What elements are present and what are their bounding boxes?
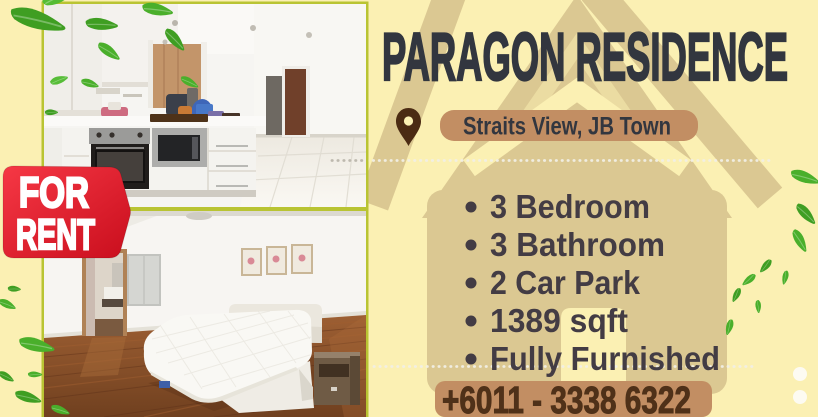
svg-text:2 Car Park: 2 Car Park <box>490 264 641 301</box>
svg-text:PARAGON RESIDENCE: PARAGON RESIDENCE <box>382 19 788 95</box>
svg-text:FOR: FOR <box>19 169 89 217</box>
svg-text:3 Bedroom: 3 Bedroom <box>490 188 650 225</box>
svg-text:+6011 - 3338 6322: +6011 - 3338 6322 <box>442 380 691 417</box>
svg-text:Fully Furnished: Fully Furnished <box>490 340 720 377</box>
svg-text:RENT: RENT <box>16 211 95 259</box>
svg-text:1389 sqft: 1389 sqft <box>490 302 628 339</box>
svg-text:3 Bathroom: 3 Bathroom <box>490 226 665 263</box>
svg-text:Straits View, JB Town: Straits View, JB Town <box>463 113 671 141</box>
